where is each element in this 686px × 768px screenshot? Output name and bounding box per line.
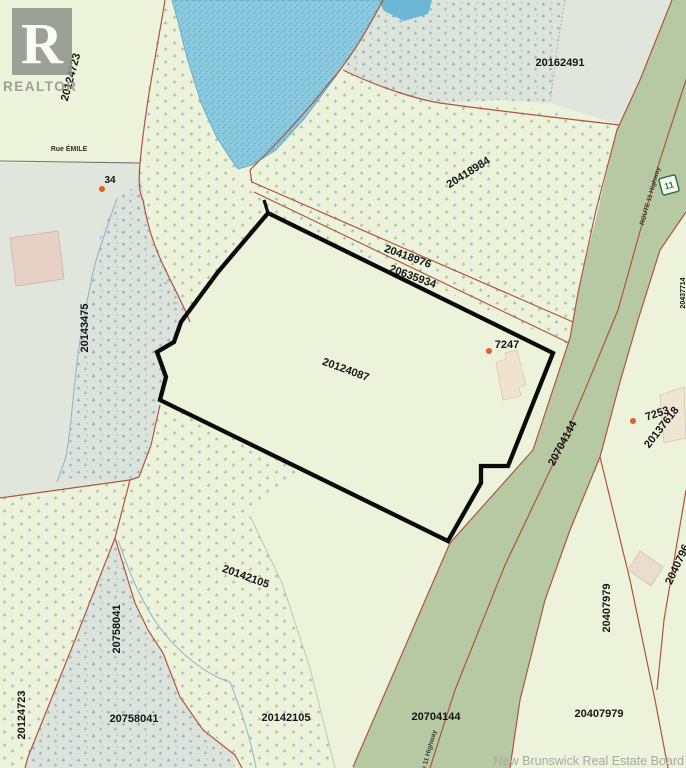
civic-dot-34 — [99, 186, 105, 192]
parcel-label-20162491: 20162491 — [536, 57, 585, 69]
parcel-label-20758041-horizontal: 20758041 — [110, 713, 159, 725]
parcel-map: 11 20124723 Rue ÉMILE 34 20162491 204189… — [0, 0, 686, 768]
attribution-text: New Brunswick Real Estate Board — [494, 754, 684, 768]
building-west — [10, 231, 64, 286]
realtor-logo-letter: R — [21, 11, 64, 76]
civic-label-34: 34 — [104, 175, 116, 186]
civic-label-7247: 7247 — [495, 339, 519, 351]
parcel-label-20143475: 20143475 — [79, 304, 91, 353]
civic-dot-7247 — [486, 348, 492, 354]
parcel-label-20407979-horizontal: 20407979 — [575, 708, 624, 720]
map-canvas[interactable]: 11 20124723 Rue ÉMILE 34 20162491 204189… — [0, 0, 686, 768]
street-label-rue-emile: Rue ÉMILE — [51, 144, 88, 153]
parcel-label-right-edge-partial: 20437714 — [680, 277, 686, 308]
parcel-label-20407979-vertical: 20407979 — [601, 584, 613, 633]
realtor-wordmark: REALTOR — [3, 79, 78, 94]
route-11-shield-icon: 11 — [659, 175, 680, 196]
parcel-label-20124723-bottom: 20124723 — [16, 691, 28, 740]
parcel-label-20704144-lower: 20704144 — [412, 711, 462, 723]
parcel-label-20142105-lower: 20142105 — [262, 712, 311, 724]
parcel-label-20758041-vertical: 20758041 — [111, 605, 123, 654]
realtor-logo: R REALTOR — [3, 8, 78, 94]
civic-dot-7253 — [630, 418, 636, 424]
